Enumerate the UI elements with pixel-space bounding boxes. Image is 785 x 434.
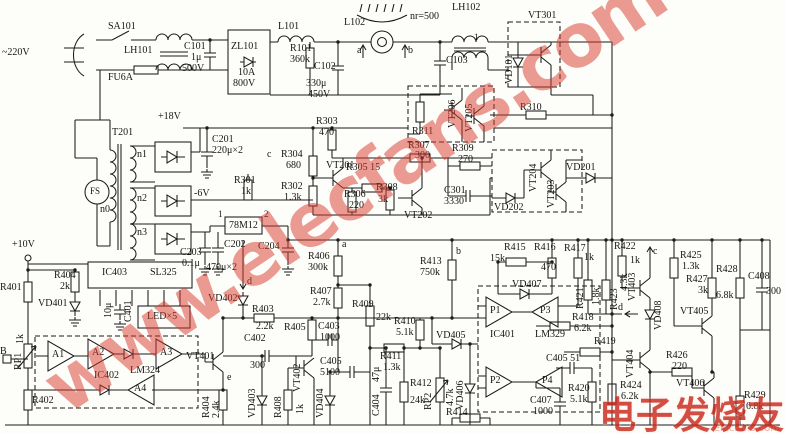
resistor-r406	[334, 256, 342, 276]
ground-icon	[201, 169, 213, 178]
transistor-vt202	[404, 188, 422, 208]
comparator-p4	[536, 367, 562, 397]
resistor-r418	[550, 322, 570, 330]
capacitor-c403	[322, 334, 338, 346]
capacitor-c407	[554, 396, 566, 412]
resistor-r409	[366, 306, 374, 326]
diode-vd202	[502, 193, 518, 203]
resistor-r410	[416, 320, 424, 340]
terminal-b-pad	[3, 355, 11, 363]
potentiometer-rp2	[430, 378, 448, 402]
resistor-r413	[448, 260, 456, 280]
transistor-vt404	[632, 350, 650, 370]
resistor-r405	[308, 320, 316, 340]
diode-vd407	[516, 289, 532, 299]
resistor-r303	[328, 130, 336, 150]
transistor-vt403	[632, 278, 650, 298]
choke-lh101-coil	[156, 34, 192, 40]
work-coil-l102-inner	[378, 38, 387, 47]
resistor-r101	[306, 48, 314, 68]
ground-icon	[114, 321, 126, 330]
diode-vd401	[70, 298, 80, 314]
transformer-t201-winding-n1	[130, 146, 136, 182]
rectifier-block-2	[155, 186, 191, 216]
cooking-pan-icon	[357, 4, 407, 22]
wires-right	[612, 240, 770, 425]
capacitor-c103	[434, 55, 446, 71]
transformer-lh102-secondary	[452, 52, 488, 58]
resistor-r309	[460, 162, 480, 170]
diode-vd406	[465, 380, 475, 396]
diode-vd408	[645, 306, 655, 322]
opamp-a4	[128, 375, 154, 405]
transistor-vt301	[533, 45, 551, 65]
transistor-vt205	[466, 106, 484, 126]
resistor-r301	[244, 180, 252, 200]
resistor-r307	[410, 154, 430, 162]
ground-icon	[69, 317, 81, 326]
ground-icon	[212, 266, 224, 275]
capacitor-c401	[114, 304, 126, 320]
schematic-page: SA101~220VLH101FU6AC1011μ500VZL10110A800…	[0, 0, 785, 434]
schematic-drawing	[0, 0, 785, 434]
transistor-vt204	[533, 160, 551, 180]
ground-icon	[282, 266, 294, 275]
opamp-a1	[48, 341, 74, 371]
diode-icon	[120, 349, 136, 359]
opamp-a3	[156, 339, 182, 369]
resistor-r425	[670, 258, 678, 278]
transistor-vt401	[205, 352, 223, 372]
wires-vt203-box	[492, 150, 612, 212]
transformer-t201-primary	[110, 150, 116, 186]
potentiometer-rp1	[18, 344, 36, 368]
transistor-vt206	[444, 100, 462, 120]
resistor-r420	[588, 382, 596, 402]
capacitor-c301	[460, 190, 476, 202]
capacitor-c405	[344, 366, 360, 378]
capacitor-c406	[564, 362, 580, 374]
diode-vd405	[448, 339, 464, 349]
bridge-zl101-box	[228, 30, 270, 94]
rectifier-block-3	[155, 224, 191, 254]
capacitor-c202	[212, 242, 224, 258]
resistor-r407	[334, 288, 342, 308]
diode-vd404	[325, 392, 335, 408]
comparator-p2	[486, 367, 512, 397]
resistor-r401	[24, 282, 32, 302]
testpoint-d2-arrow	[625, 311, 638, 317]
resistor-r308	[386, 190, 394, 210]
opamp-a2	[88, 339, 114, 369]
ground-icon	[199, 266, 211, 275]
resistor-r311	[416, 102, 424, 122]
resistor-r423	[602, 280, 610, 300]
fan-fs-circle	[85, 180, 109, 204]
resistor-r404b	[219, 390, 227, 410]
resistor-r403	[254, 314, 274, 322]
testpoint-c-arrow	[647, 247, 653, 260]
testpoint-a-arrow	[360, 45, 366, 58]
diode-vd101	[513, 54, 523, 70]
lm324-dashed-box	[35, 336, 198, 408]
choke-lh101-coil	[156, 64, 192, 70]
resistor-r412	[400, 382, 408, 402]
resistor-r421	[584, 280, 592, 300]
diode-icon	[96, 385, 112, 395]
resistor-r402	[24, 390, 32, 410]
lm329-dashed-box	[478, 286, 600, 412]
resistor-r305	[362, 184, 382, 192]
transformer-t201-winding-n2	[130, 188, 136, 224]
transistor-vt402	[296, 358, 314, 378]
capacitor-c203	[199, 242, 211, 258]
work-coil-l102	[371, 31, 393, 53]
diode-vd402	[238, 292, 248, 308]
resistor-r422	[618, 256, 626, 276]
resistor-r306	[348, 192, 356, 212]
diode-vd403	[257, 392, 267, 408]
component-symbols	[18, 4, 768, 422]
ic403-sl325-box	[88, 262, 192, 288]
testpoint-b-arrow	[402, 45, 408, 58]
resistor-r427	[708, 278, 716, 298]
rectifier-block-1	[155, 142, 191, 172]
transistor-vt405	[694, 316, 712, 336]
wires	[5, 31, 780, 425]
resistor-r304	[309, 156, 317, 176]
wires-driver	[313, 128, 492, 215]
resistor-r404	[71, 272, 79, 292]
resistor-r428	[736, 278, 744, 298]
capacitor-c404	[380, 382, 392, 398]
capacitor-c201	[201, 146, 213, 162]
resistor-r429	[736, 396, 744, 416]
resistor-r419	[580, 348, 600, 356]
led-display-box	[138, 306, 190, 328]
diode-vd201	[582, 173, 598, 183]
resistor-r417	[574, 258, 582, 278]
resistor-r426	[672, 368, 692, 376]
inductor-l101	[278, 36, 314, 42]
capacitor-c408	[756, 282, 768, 298]
transformer-t201-winding-n3	[130, 224, 136, 260]
resistor-r310	[526, 111, 546, 119]
fuse-fu6a-body	[134, 66, 158, 74]
comparator-p1	[486, 297, 512, 327]
resistor-r408	[284, 390, 292, 410]
resistor-r302	[309, 186, 317, 206]
capacitor-c101	[204, 47, 216, 63]
transistor-vt201	[325, 168, 343, 188]
resistor-r415	[506, 258, 526, 266]
terminal-plus10v	[25, 255, 31, 261]
transistor-vt406	[696, 378, 714, 398]
transformer-t201-primary	[110, 186, 116, 222]
transformer-lh102-primary	[452, 36, 488, 42]
capacitor-c102	[332, 60, 344, 76]
capacitor-c204	[282, 242, 294, 258]
testpoint-d-arrow	[240, 276, 246, 289]
regulator-78m12-box	[225, 217, 262, 234]
